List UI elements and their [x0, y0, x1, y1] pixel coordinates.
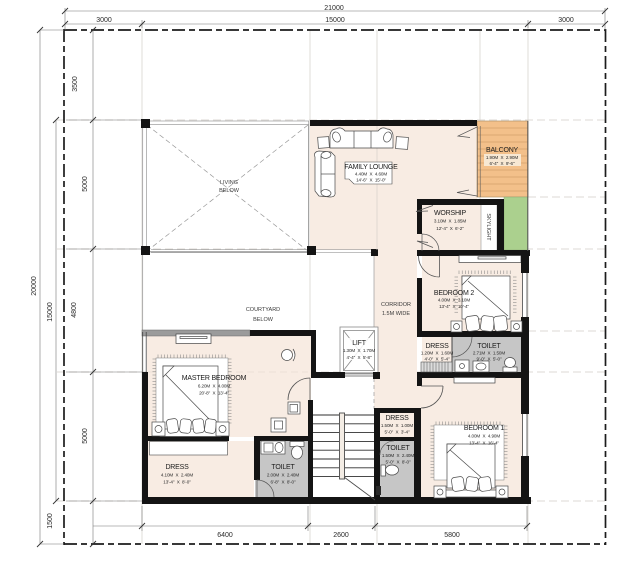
- svg-text:20'-8" X 13'-4": 20'-8" X 13'-4": [199, 391, 229, 396]
- svg-text:LIVING: LIVING: [220, 180, 238, 186]
- svg-text:21000: 21000: [324, 5, 344, 12]
- svg-text:15000: 15000: [47, 302, 54, 322]
- svg-text:DRESS: DRESS: [385, 415, 409, 422]
- svg-text:BEDROOM 1: BEDROOM 1: [464, 425, 505, 432]
- svg-text:BALCONY: BALCONY: [486, 147, 519, 154]
- svg-text:4.00M X 4.90M: 4.00M X 4.90M: [468, 434, 500, 439]
- svg-text:1.50M X 1.00M: 1.50M X 1.00M: [381, 423, 413, 428]
- svg-text:4'-0" X 5'-4": 4'-0" X 5'-4": [425, 357, 450, 362]
- svg-text:3000: 3000: [558, 17, 574, 24]
- svg-text:LIFT: LIFT: [352, 340, 367, 347]
- svg-text:15000: 15000: [325, 17, 345, 24]
- svg-text:13'-4" X 10'-4": 13'-4" X 10'-4": [439, 304, 469, 309]
- svg-text:9'-0" X 5'-0": 9'-0" X 5'-0": [477, 357, 502, 362]
- svg-text:2.71M X 1.50M: 2.71M X 1.50M: [473, 351, 505, 356]
- svg-text:12'-4" X 6'-2": 12'-4" X 6'-2": [436, 226, 464, 231]
- svg-text:4800: 4800: [71, 302, 78, 318]
- svg-text:1500: 1500: [47, 513, 54, 529]
- svg-text:13'-4" X 8'-0": 13'-4" X 8'-0": [163, 480, 191, 485]
- svg-text:2.00M X 2.40M: 2.00M X 2.40M: [267, 473, 299, 478]
- svg-text:1.50M X 2.40M: 1.50M X 2.40M: [382, 453, 414, 458]
- svg-text:DRESS: DRESS: [165, 464, 189, 471]
- svg-text:5'-0" X 8'-0": 5'-0" X 8'-0": [386, 460, 411, 465]
- svg-text:6'-8" X 8'-0": 6'-8" X 8'-0": [271, 480, 296, 485]
- svg-text:20000: 20000: [31, 276, 38, 296]
- svg-text:TOILET: TOILET: [386, 445, 410, 452]
- svg-text:1.20M X 1.60M: 1.20M X 1.60M: [421, 351, 453, 356]
- svg-text:COURTYARD: COURTYARD: [246, 307, 280, 313]
- svg-text:6400: 6400: [217, 532, 233, 539]
- svg-text:5000: 5000: [82, 428, 89, 444]
- svg-text:4.00M X 3.10M: 4.00M X 3.10M: [438, 298, 470, 303]
- svg-text:6.20M X 4.00M: 6.20M X 4.00M: [198, 384, 230, 389]
- svg-text:5800: 5800: [444, 532, 460, 539]
- svg-text:CORRIDOR: CORRIDOR: [381, 302, 411, 308]
- svg-text:3.10M X 1.85M: 3.10M X 1.85M: [434, 219, 466, 224]
- svg-text:SKYLIGHT: SKYLIGHT: [485, 213, 491, 241]
- svg-text:WORSHIP: WORSHIP: [434, 210, 467, 217]
- svg-text:14'-6" X 15'-0": 14'-6" X 15'-0": [356, 178, 386, 183]
- svg-text:TOILET: TOILET: [271, 464, 295, 471]
- svg-text:4.10M X 2.40M: 4.10M X 2.40M: [161, 473, 193, 478]
- svg-text:BELOW: BELOW: [253, 317, 274, 323]
- svg-text:FAMILY LOUNGE: FAMILY LOUNGE: [344, 164, 398, 171]
- svg-text:6'-4" X 9'-6": 6'-4" X 9'-6": [490, 161, 515, 166]
- svg-text:BEDROOM 2: BEDROOM 2: [434, 290, 475, 297]
- svg-text:TOILET: TOILET: [477, 343, 501, 350]
- svg-text:3000: 3000: [96, 17, 112, 24]
- svg-text:4.40M X 4.60M: 4.40M X 4.60M: [355, 172, 387, 177]
- svg-text:5000: 5000: [82, 176, 89, 192]
- svg-text:DRESS: DRESS: [425, 343, 449, 350]
- svg-text:5'-0" X 3'-4": 5'-0" X 3'-4": [385, 430, 410, 435]
- svg-text:4'-4" X 5'-8": 4'-4" X 5'-8": [347, 355, 372, 360]
- svg-text:1.30M X 1.70M: 1.30M X 1.70M: [343, 348, 375, 353]
- svg-text:3500: 3500: [72, 76, 79, 92]
- svg-text:MASTER BEDROOM: MASTER BEDROOM: [182, 375, 247, 382]
- svg-text:1.90M X 2.90M: 1.90M X 2.90M: [486, 155, 518, 160]
- svg-text:13'-4" X 16'-4": 13'-4" X 16'-4": [469, 441, 499, 446]
- svg-text:1.5M WIDE: 1.5M WIDE: [382, 311, 410, 317]
- svg-text:2600: 2600: [333, 532, 349, 539]
- svg-text:BELOW: BELOW: [219, 188, 240, 194]
